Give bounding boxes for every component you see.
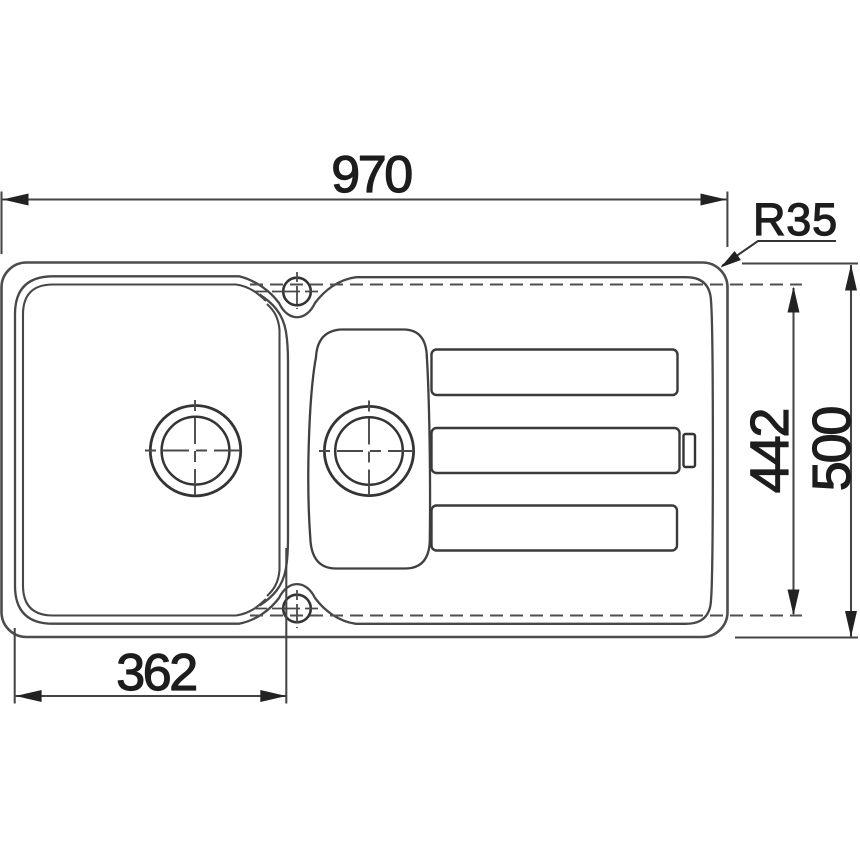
svg-text:R35: R35 [753, 194, 838, 245]
svg-text:442: 442 [740, 410, 800, 494]
svg-text:970: 970 [331, 146, 411, 204]
svg-text:362: 362 [116, 644, 196, 702]
svg-text:500: 500 [802, 408, 860, 492]
